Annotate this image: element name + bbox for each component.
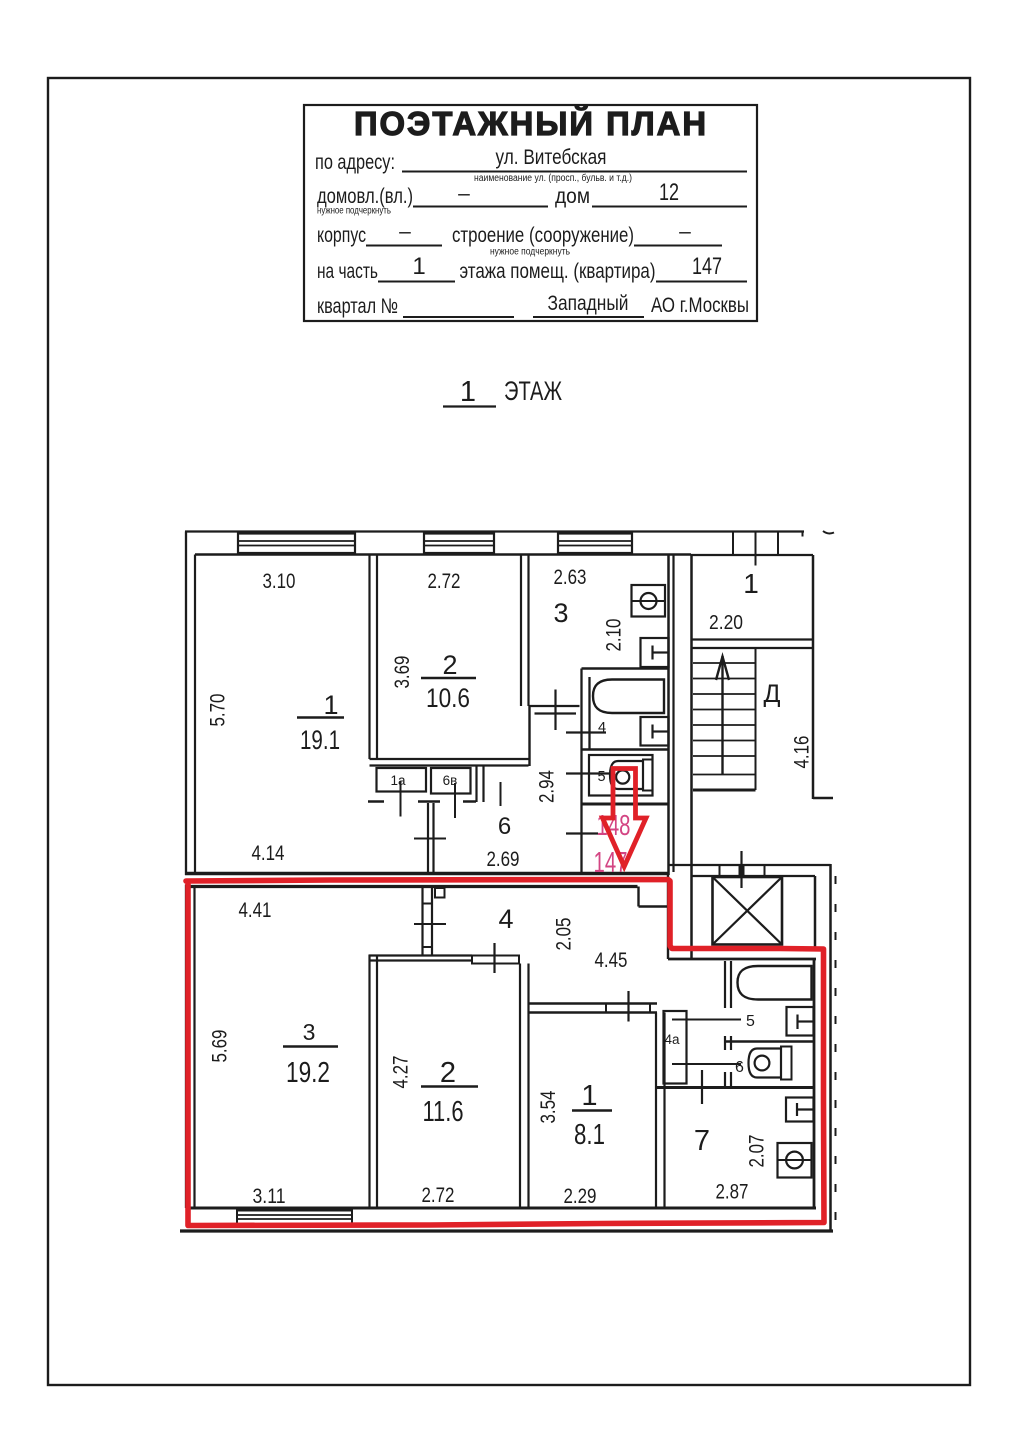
svg-text:2.20: 2.20 bbox=[709, 612, 743, 634]
svg-text:2.07: 2.07 bbox=[745, 1135, 769, 1168]
svg-text:3: 3 bbox=[553, 598, 568, 628]
svg-text:1: 1 bbox=[581, 1080, 597, 1112]
svg-text:2.63: 2.63 bbox=[554, 565, 587, 589]
svg-text:12: 12 bbox=[659, 179, 679, 206]
svg-text:3.10: 3.10 bbox=[263, 569, 296, 593]
svg-text:4.27: 4.27 bbox=[389, 1056, 413, 1089]
svg-text:2: 2 bbox=[442, 650, 457, 680]
svg-text:1: 1 bbox=[743, 568, 759, 599]
svg-text:4а: 4а bbox=[664, 1032, 680, 1047]
svg-text:Д: Д bbox=[764, 680, 781, 708]
svg-text:2.94: 2.94 bbox=[535, 770, 559, 803]
svg-text:11.6: 11.6 bbox=[423, 1096, 464, 1128]
svg-text:этажа помещ. (квартира): этажа помещ. (квартира) bbox=[460, 260, 656, 283]
svg-text:8.1: 8.1 bbox=[574, 1119, 605, 1151]
svg-text:3.11: 3.11 bbox=[253, 1184, 286, 1208]
svg-text:10.6: 10.6 bbox=[426, 683, 470, 713]
svg-text:2.69: 2.69 bbox=[487, 847, 520, 871]
svg-text:2.87: 2.87 bbox=[716, 1180, 749, 1204]
svg-text:нужное подчеркнуть: нужное подчеркнуть bbox=[317, 206, 391, 217]
svg-text:ЭТАЖ: ЭТАЖ bbox=[504, 376, 562, 406]
svg-text:5.70: 5.70 bbox=[206, 693, 230, 726]
svg-text:4.14: 4.14 bbox=[252, 841, 285, 865]
svg-text:2.29: 2.29 bbox=[564, 1184, 597, 1208]
svg-text:строение (сооружение): строение (сооружение) bbox=[452, 224, 634, 247]
svg-text:2.72: 2.72 bbox=[422, 1183, 455, 1207]
svg-text:2.72: 2.72 bbox=[428, 569, 461, 593]
svg-text:2.10: 2.10 bbox=[602, 618, 626, 651]
svg-text:квартал №: квартал № bbox=[317, 295, 398, 318]
svg-text:4.45: 4.45 bbox=[595, 948, 628, 972]
svg-text:5.69: 5.69 bbox=[208, 1030, 232, 1063]
svg-text:по адресу:: по адресу: bbox=[315, 151, 395, 174]
svg-text:6: 6 bbox=[735, 1059, 744, 1076]
svg-text:4.16: 4.16 bbox=[790, 735, 814, 768]
svg-text:ул. Витебская: ул. Витебская bbox=[496, 145, 607, 169]
svg-text:1: 1 bbox=[323, 690, 338, 720]
svg-text:–: – bbox=[399, 220, 411, 243]
svg-text:на часть: на часть bbox=[317, 260, 378, 283]
svg-text:1: 1 bbox=[460, 376, 476, 408]
svg-text:2.05: 2.05 bbox=[552, 917, 576, 950]
svg-text:5: 5 bbox=[597, 769, 605, 785]
svg-text:2: 2 bbox=[440, 1057, 456, 1089]
svg-text:3.54: 3.54 bbox=[536, 1090, 560, 1123]
svg-text:147: 147 bbox=[692, 253, 722, 280]
svg-text:4.41: 4.41 bbox=[239, 898, 272, 922]
svg-text:3.69: 3.69 bbox=[390, 656, 414, 689]
svg-text:4: 4 bbox=[598, 720, 606, 736]
svg-text:наименование ул. (просп., буль: наименование ул. (просп., бульв. и т.д.) bbox=[474, 172, 632, 184]
svg-text:ПОЭТАЖНЫЙ ПЛАН: ПОЭТАЖНЫЙ ПЛАН bbox=[354, 104, 708, 142]
svg-text:5: 5 bbox=[746, 1013, 755, 1030]
svg-text:1а: 1а bbox=[390, 773, 406, 788]
svg-text:3: 3 bbox=[303, 1019, 316, 1045]
svg-text:–: – bbox=[458, 182, 470, 205]
svg-text:Западный: Западный bbox=[548, 292, 629, 315]
svg-text:АО г.Москвы: АО г.Москвы bbox=[651, 294, 749, 317]
svg-text:–: – bbox=[679, 220, 691, 243]
svg-text:дом: дом bbox=[555, 185, 590, 208]
svg-text:6: 6 bbox=[498, 813, 511, 840]
svg-text:19.2: 19.2 bbox=[286, 1057, 330, 1089]
svg-text:нужное подчеркнуть: нужное подчеркнуть bbox=[490, 247, 570, 258]
svg-text:корпус: корпус bbox=[317, 224, 366, 247]
svg-text:1: 1 bbox=[412, 253, 425, 280]
svg-text:19.1: 19.1 bbox=[300, 725, 340, 755]
svg-text:7: 7 bbox=[694, 1125, 710, 1157]
svg-text:4: 4 bbox=[498, 904, 513, 934]
